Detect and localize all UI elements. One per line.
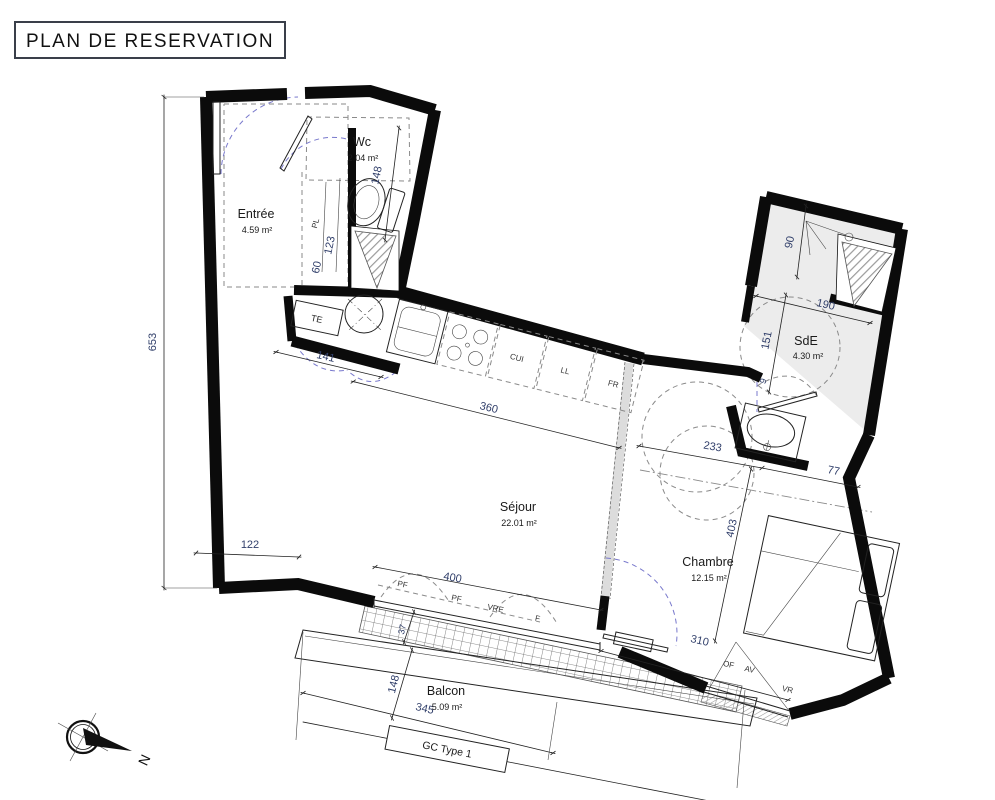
north-compass: N [58, 713, 154, 768]
floor-plan-canvas: TE CUI LL FR 360 [0, 0, 995, 800]
plan-type: GC Type 1 [301, 709, 757, 800]
cui-label: CUI [509, 352, 525, 364]
dim-closet-width: 60 [310, 260, 324, 274]
entree-dashed-outline [224, 104, 348, 287]
chambre-name: Chambre [682, 555, 733, 569]
electrical-panel: TE [291, 300, 343, 335]
entree-area: 4.59 m² [242, 225, 273, 235]
wc-area: 2.04 m² [348, 153, 379, 163]
balcon-name: Balcon [427, 684, 465, 698]
te-label: TE [310, 313, 323, 325]
entry-door-swing-arc [221, 97, 298, 174]
chambre-door-swing-arc [606, 558, 677, 646]
duct-shaft-wc [351, 226, 399, 291]
dim-closet-depth: 123 [322, 235, 338, 255]
exterior-walls [206, 91, 902, 714]
fr-label: FR [607, 378, 620, 389]
cooktop-dashed [437, 312, 499, 376]
sde-door-leaf [758, 392, 817, 412]
sde-area: 4.30 m² [793, 351, 824, 361]
water-heater-cross [348, 299, 382, 331]
opening-pf1-label: PF [397, 579, 409, 590]
dim-chambre-bay: 310 [689, 633, 710, 649]
chambre-door-leaf [603, 634, 668, 652]
opening-vre-label: VRE [487, 602, 505, 614]
title-block: PLAN DE RESERVATION [15, 22, 285, 58]
dim-line-kitchen [353, 382, 619, 448]
wc-door-swing-arc [281, 137, 353, 169]
dim-chambre-length: 403 [724, 518, 740, 538]
sejour-area: 22.01 m² [501, 518, 537, 528]
entree-name: Entrée [238, 207, 275, 221]
opening-of-label: OF [722, 659, 735, 670]
interior-walls [288, 128, 605, 630]
opening-vr-label: VR [781, 684, 794, 695]
dim-chambre-to-wall: 77 [826, 464, 840, 478]
sejour-chambre-partition [605, 363, 629, 598]
wc-dashed-outline [306, 117, 410, 181]
balcon-area: 5.09 m² [432, 702, 463, 712]
sejour-name: Séjour [500, 500, 536, 514]
wc-name: Wc [353, 135, 371, 149]
north-label: N [135, 752, 154, 768]
ll-label: LL [560, 366, 571, 377]
chambre-area: 12.15 m² [691, 573, 727, 583]
entry-door-leaf [213, 102, 220, 174]
dim-sejour-left: 122 [241, 539, 259, 551]
page-title: PLAN DE RESERVATION [26, 31, 274, 52]
opening-av-label: AV [744, 664, 756, 675]
sde-name: SdE [794, 334, 818, 348]
pl-closet-label: PL [310, 217, 321, 229]
dim-chambre-width: 233 [702, 440, 722, 455]
water-heater [345, 295, 383, 333]
dim-bay-width: 400 [442, 571, 462, 586]
dim-left-total: 653 [147, 333, 159, 351]
dim-wc-depth: 148 [369, 165, 385, 185]
dim-sde-door-offset: 9 [758, 377, 769, 385]
